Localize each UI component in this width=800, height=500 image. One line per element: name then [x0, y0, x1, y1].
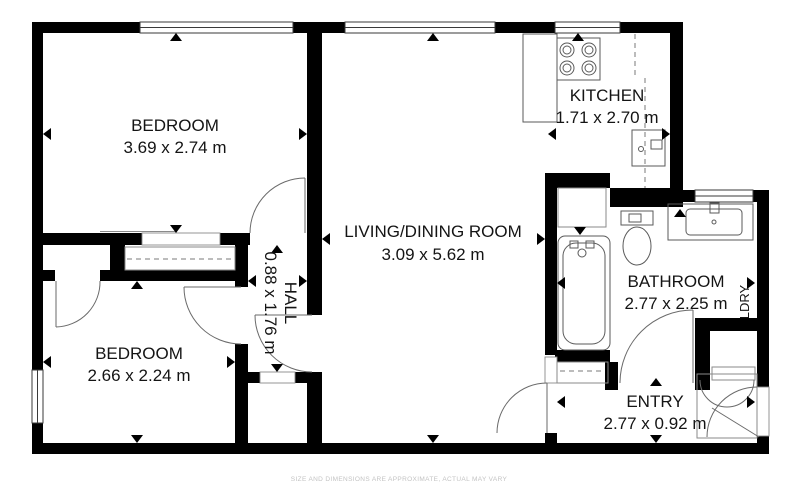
bathtub-icon: [558, 236, 610, 350]
door-swing: [620, 310, 693, 383]
room-dims-bedroom-1: 3.69 x 2.74 m: [123, 138, 226, 157]
door-swing: [497, 383, 547, 433]
room-dims-entry: 2.77 x 0.92 m: [603, 414, 706, 433]
room-label-kitchen: KITCHEN: [570, 86, 645, 105]
door-swing: [250, 178, 305, 233]
room-label-living-dining: LIVING/DINING ROOM: [344, 222, 522, 241]
room-dims-hall: 0.88 x 1.76 m: [261, 251, 280, 354]
stove-icon: [557, 38, 600, 80]
window: [555, 22, 620, 33]
floor-plan-page: BEDROOM 3.69 x 2.74 m LIVING/DINING ROOM…: [0, 0, 800, 500]
room-label-hall: HALL: [281, 282, 300, 325]
linen-closet: [558, 188, 606, 227]
room-label-bedroom-1: BEDROOM: [131, 116, 219, 135]
room-labels: BEDROOM 3.69 x 2.74 m LIVING/DINING ROOM…: [87, 86, 752, 433]
floor-plan: BEDROOM 3.69 x 2.74 m LIVING/DINING ROOM…: [0, 0, 800, 500]
room-dims-kitchen: 1.71 x 2.70 m: [555, 108, 658, 127]
sink-vanity-icon: [668, 203, 753, 240]
window: [140, 22, 293, 33]
room-label-laundry: LDRY: [737, 284, 752, 319]
disclaimer-text: SIZE AND DIMENSIONS ARE APPROXIMATE, ACT…: [291, 476, 508, 483]
room-label-laundry-group: LDRY: [737, 284, 752, 319]
window: [695, 190, 753, 202]
room-dims-bathroom: 2.77 x 2.25 m: [624, 294, 727, 313]
room-label-bedroom-2: BEDROOM: [95, 344, 183, 363]
refrigerator-icon: [632, 130, 665, 166]
entry-closet: [557, 362, 608, 383]
room-dims-bedroom-2: 2.66 x 2.24 m: [87, 366, 190, 385]
room-dims-living-dining: 3.09 x 5.62 m: [381, 245, 484, 264]
door-swing: [184, 287, 241, 344]
door-swing: [707, 387, 759, 437]
room-label-entry: ENTRY: [626, 392, 683, 411]
toilet-icon: [621, 211, 653, 265]
window: [32, 370, 43, 423]
door-swing: [56, 281, 100, 327]
window: [345, 22, 495, 33]
room-label-hall-group: HALL 0.88 x 1.76 m: [261, 251, 300, 354]
room-label-bathroom: BATHROOM: [628, 272, 725, 291]
